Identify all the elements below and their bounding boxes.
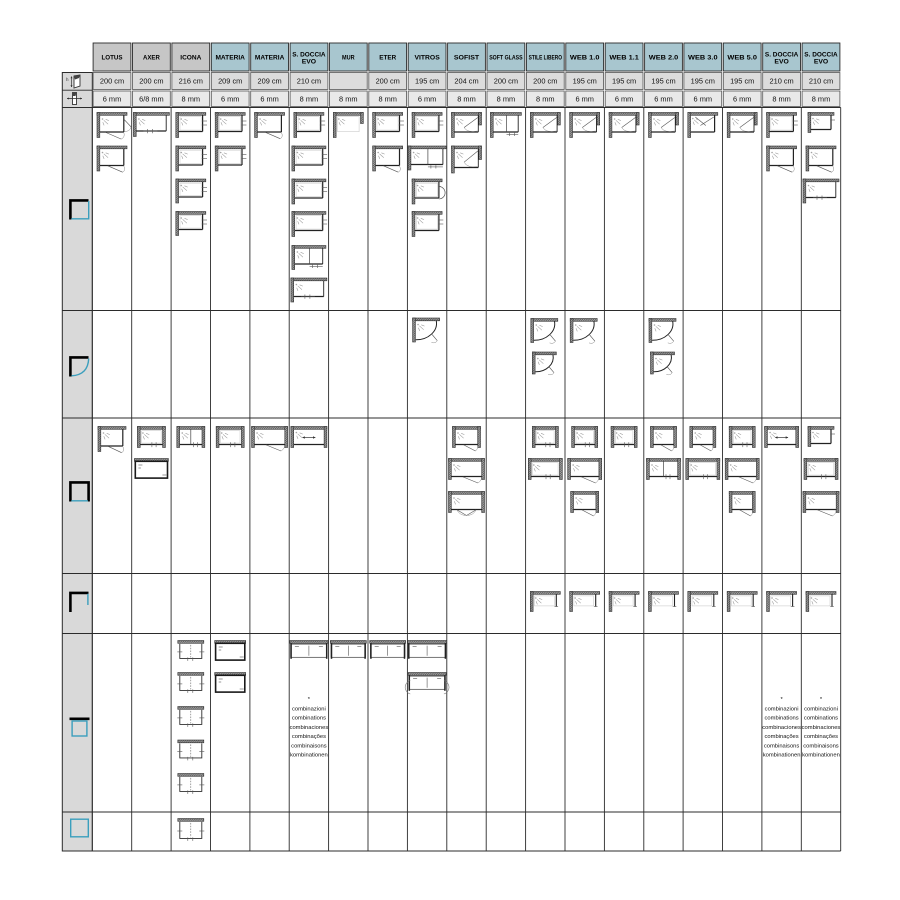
svg-text:195 cm: 195 cm xyxy=(730,77,754,86)
svg-text:S. DOCCIA: S. DOCCIA xyxy=(292,51,325,58)
svg-text:combinazioni: combinazioni xyxy=(292,707,326,713)
svg-text:ETER: ETER xyxy=(379,54,396,61)
svg-text:EVO: EVO xyxy=(814,58,828,65)
svg-text:MATERIA: MATERIA xyxy=(215,54,245,61)
svg-text:combinaciones: combinaciones xyxy=(290,725,329,731)
svg-text:kombinationen: kombinationen xyxy=(290,753,328,759)
svg-text:6 mm: 6 mm xyxy=(103,94,121,103)
svg-text:8 mm: 8 mm xyxy=(378,94,396,103)
svg-text:WEB 2.0: WEB 2.0 xyxy=(649,54,679,61)
svg-text:200 cm: 200 cm xyxy=(533,77,557,86)
svg-text:combinaisons: combinaisons xyxy=(291,743,327,749)
svg-text:8 mm: 8 mm xyxy=(497,94,515,103)
svg-text:MATERIA: MATERIA xyxy=(255,54,285,61)
svg-text:WEB 5.0: WEB 5.0 xyxy=(727,54,757,61)
svg-text:MUR: MUR xyxy=(342,54,355,61)
svg-text:6 mm: 6 mm xyxy=(733,94,751,103)
svg-text:8 mm: 8 mm xyxy=(536,94,554,103)
svg-text:209 cm: 209 cm xyxy=(218,77,242,86)
svg-text:EVO: EVO xyxy=(302,58,316,65)
svg-text:ICONA: ICONA xyxy=(180,54,201,61)
svg-text:EVO: EVO xyxy=(774,58,788,65)
svg-text:kombinationen: kombinationen xyxy=(763,753,801,759)
svg-text:combinations: combinations xyxy=(292,716,326,722)
svg-text:200 cm: 200 cm xyxy=(376,77,400,86)
svg-text:195 cm: 195 cm xyxy=(612,77,636,86)
svg-text:combinaisons: combinaisons xyxy=(803,743,839,749)
svg-text:combinaisons: combinaisons xyxy=(764,743,800,749)
svg-text:6 mm: 6 mm xyxy=(615,94,633,103)
svg-text:WEB 1.1: WEB 1.1 xyxy=(609,54,639,61)
svg-text:8 mm: 8 mm xyxy=(300,94,318,103)
svg-text:combinations: combinations xyxy=(765,716,799,722)
svg-text:8 mm: 8 mm xyxy=(182,94,200,103)
svg-text:6 mm: 6 mm xyxy=(575,94,593,103)
svg-text:STILE LIBERO: STILE LIBERO xyxy=(529,54,562,61)
svg-text:8 mm: 8 mm xyxy=(457,94,475,103)
svg-text:210 cm: 210 cm xyxy=(809,77,833,86)
svg-text:204 cm: 204 cm xyxy=(454,77,478,86)
svg-text:AXER: AXER xyxy=(143,54,160,61)
svg-text:combinazioni: combinazioni xyxy=(804,707,838,713)
svg-text:8 mm: 8 mm xyxy=(812,94,830,103)
svg-text:200 cm: 200 cm xyxy=(100,77,124,86)
svg-text:LOTUS: LOTUS xyxy=(101,54,123,61)
svg-text:8 mm: 8 mm xyxy=(772,94,790,103)
svg-text:WEB 1.0: WEB 1.0 xyxy=(570,54,600,61)
svg-text:8 mm: 8 mm xyxy=(339,94,357,103)
svg-text:6 mm: 6 mm xyxy=(694,94,712,103)
svg-text:210 cm: 210 cm xyxy=(769,77,793,86)
svg-text:6 mm: 6 mm xyxy=(418,94,436,103)
svg-text:195 cm: 195 cm xyxy=(573,77,597,86)
svg-text:6 mm: 6 mm xyxy=(221,94,239,103)
svg-text:combinações: combinações xyxy=(765,734,799,740)
svg-text:combinations: combinations xyxy=(804,716,838,722)
svg-text:195 cm: 195 cm xyxy=(651,77,675,86)
svg-text:combinaciones: combinaciones xyxy=(802,725,841,731)
svg-text:WEB 3.0: WEB 3.0 xyxy=(688,54,718,61)
svg-text:combinaciones: combinaciones xyxy=(762,725,801,731)
svg-text:kombinationen: kombinationen xyxy=(802,753,840,759)
svg-text:combinações: combinações xyxy=(292,734,326,740)
svg-text:195 cm: 195 cm xyxy=(415,77,439,86)
svg-text:209 cm: 209 cm xyxy=(257,77,281,86)
svg-text:6/8 mm: 6/8 mm xyxy=(139,94,164,103)
svg-text:6 mm: 6 mm xyxy=(260,94,278,103)
svg-text:combinazioni: combinazioni xyxy=(765,707,799,713)
svg-text:6 mm: 6 mm xyxy=(654,94,672,103)
svg-text:195 cm: 195 cm xyxy=(691,77,715,86)
svg-text:216 cm: 216 cm xyxy=(179,77,203,86)
svg-text:S. DOCCIA: S. DOCCIA xyxy=(765,51,798,58)
svg-text:S. DOCCIA: S. DOCCIA xyxy=(804,51,837,58)
svg-text:SOFT GLASS: SOFT GLASS xyxy=(489,54,523,61)
svg-text:SOFIST: SOFIST xyxy=(454,54,480,61)
svg-text:200 cm: 200 cm xyxy=(494,77,518,86)
svg-text:200 cm: 200 cm xyxy=(139,77,163,86)
svg-text:combinações: combinações xyxy=(804,734,838,740)
svg-text:VITROS: VITROS xyxy=(414,54,440,61)
svg-text:210 cm: 210 cm xyxy=(297,77,321,86)
